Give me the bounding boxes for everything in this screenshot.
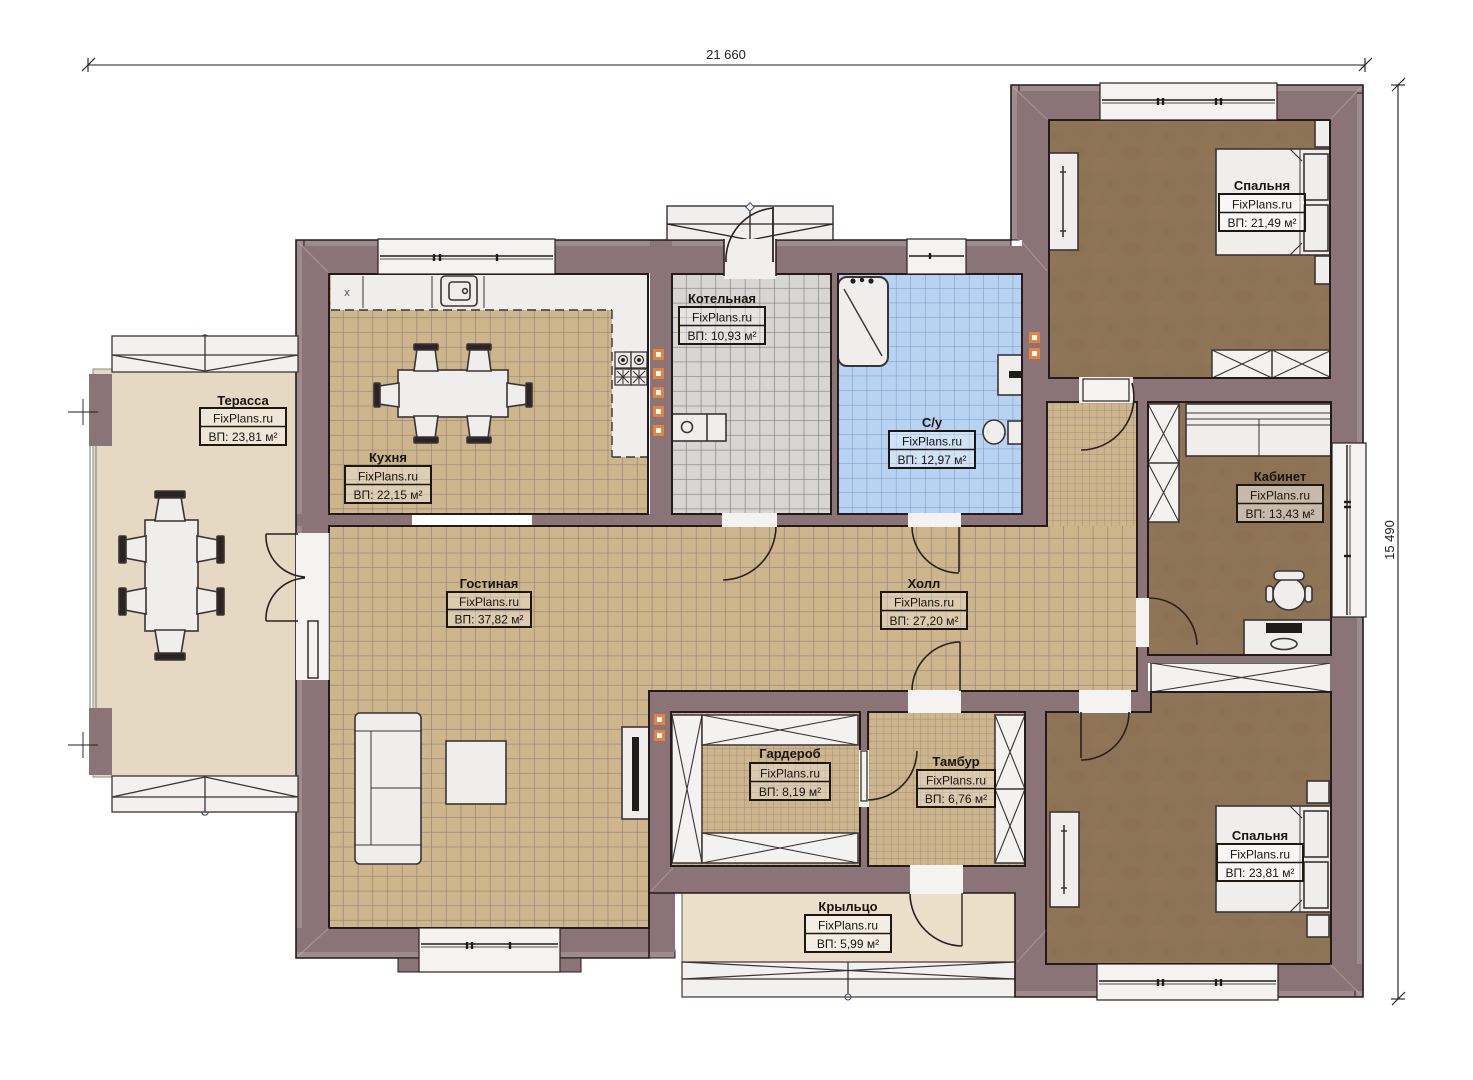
svg-text:FixPlans.ru: FixPlans.ru: [1232, 198, 1292, 212]
svg-text:ВП: 6,76 м²: ВП: 6,76 м²: [925, 792, 987, 806]
svg-text:Котельная: Котельная: [688, 291, 756, 306]
svg-text:21 660: 21 660: [706, 47, 746, 62]
svg-text:FixPlans.ru: FixPlans.ru: [894, 596, 954, 610]
svg-text:ВП: 23,81 м²: ВП: 23,81 м²: [1226, 866, 1295, 880]
svg-text:FixPlans.ru: FixPlans.ru: [1230, 848, 1290, 862]
svg-text:Спальня: Спальня: [1234, 178, 1290, 193]
svg-text:Гостиная: Гостиная: [460, 576, 519, 591]
svg-text:ВП: 13,43 м²: ВП: 13,43 м²: [1246, 507, 1315, 521]
svg-text:FixPlans.ru: FixPlans.ru: [459, 595, 519, 609]
svg-text:x: x: [344, 287, 350, 299]
svg-text:ВП: 27,20 м²: ВП: 27,20 м²: [890, 614, 959, 628]
svg-text:FixPlans.ru: FixPlans.ru: [213, 412, 273, 426]
svg-text:Гардероб: Гардероб: [759, 746, 820, 761]
svg-text:ВП: 21,49 м²: ВП: 21,49 м²: [1228, 216, 1297, 230]
svg-text:Терасса: Терасса: [217, 393, 269, 408]
svg-text:15 490: 15 490: [1382, 520, 1397, 560]
svg-text:FixPlans.ru: FixPlans.ru: [760, 767, 820, 781]
svg-text:FixPlans.ru: FixPlans.ru: [926, 774, 986, 788]
svg-text:Спальня: Спальня: [1232, 828, 1288, 843]
svg-text:ВП: 37,82 м²: ВП: 37,82 м²: [455, 613, 524, 627]
svg-text:ВП: 23,81 м²: ВП: 23,81 м²: [209, 430, 278, 444]
svg-text:Крыльцо: Крыльцо: [818, 899, 877, 914]
svg-text:Холл: Холл: [908, 576, 941, 591]
svg-text:Кабинет: Кабинет: [1254, 469, 1307, 484]
svg-text:ВП: 8,19 м²: ВП: 8,19 м²: [759, 785, 821, 799]
svg-text:Кухня: Кухня: [369, 450, 407, 465]
svg-text:FixPlans.ru: FixPlans.ru: [692, 311, 752, 325]
svg-text:ВП: 10,93 м²: ВП: 10,93 м²: [688, 329, 757, 343]
svg-text:С/у: С/у: [922, 415, 943, 430]
svg-text:ВП: 5,99 м²: ВП: 5,99 м²: [817, 937, 879, 951]
svg-text:FixPlans.ru: FixPlans.ru: [818, 919, 878, 933]
svg-text:ВП: 12,97 м²: ВП: 12,97 м²: [898, 453, 967, 467]
svg-text:FixPlans.ru: FixPlans.ru: [1250, 489, 1310, 503]
svg-text:ВП: 22,15 м²: ВП: 22,15 м²: [354, 488, 423, 502]
svg-text:FixPlans.ru: FixPlans.ru: [902, 435, 962, 449]
svg-text:Тамбур: Тамбур: [932, 754, 979, 769]
svg-text:FixPlans.ru: FixPlans.ru: [358, 470, 418, 484]
